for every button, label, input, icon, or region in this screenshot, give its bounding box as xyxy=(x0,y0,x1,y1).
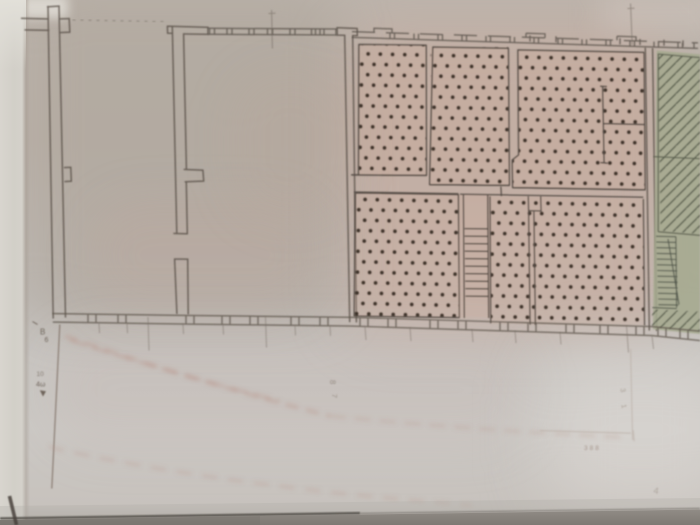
svg-text:4ω: 4ω xyxy=(36,382,46,389)
svg-text:B: B xyxy=(40,328,45,337)
svg-text:6: 6 xyxy=(45,337,49,344)
svg-text:388: 388 xyxy=(584,445,601,452)
svg-text:1: 1 xyxy=(619,404,627,409)
svg-text:7: 7 xyxy=(330,394,337,398)
svg-text:8: 8 xyxy=(328,380,337,386)
svg-text:10: 10 xyxy=(37,371,45,378)
svg-text:3: 3 xyxy=(618,388,626,393)
svg-text:4: 4 xyxy=(653,485,659,496)
